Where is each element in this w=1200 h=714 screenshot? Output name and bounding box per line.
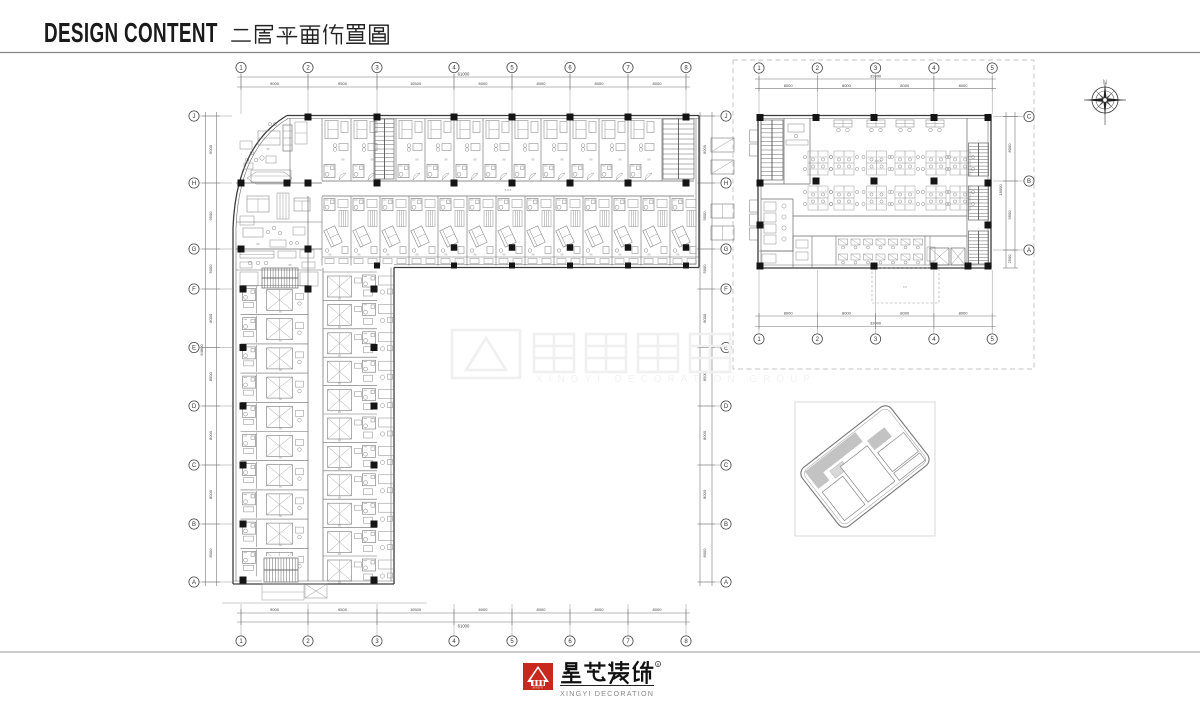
svg-text:8000: 8000 (784, 311, 794, 316)
svg-text:XINGYI DECORATION: XINGYI DECORATION (560, 689, 654, 698)
svg-text:18000: 18000 (998, 184, 1003, 196)
svg-text:8000: 8000 (959, 311, 969, 316)
svg-text:32000: 32000 (870, 321, 882, 326)
svg-text:8000: 8000 (1007, 143, 1012, 153)
svg-text:C: C (1027, 115, 1032, 121)
svg-text:8000: 8000 (959, 83, 969, 88)
svg-text:6000: 6000 (479, 607, 489, 612)
svg-text:8000: 8000 (842, 83, 852, 88)
svg-text:8 8: 8 8 (903, 285, 908, 289)
svg-text:8000: 8000 (537, 607, 547, 612)
svg-text:5000: 5000 (208, 264, 213, 274)
svg-text:A: A (1027, 248, 1031, 254)
svg-text:F: F (724, 287, 728, 293)
svg-text:J: J (725, 114, 728, 120)
svg-text:8000: 8000 (653, 607, 663, 612)
svg-text:8000: 8000 (595, 81, 605, 86)
svg-text:8000: 8000 (702, 430, 707, 440)
svg-text:A: A (724, 580, 728, 586)
svg-text:8000: 8000 (208, 489, 213, 499)
svg-text:B: B (1027, 179, 1031, 185)
svg-text:G: G (192, 247, 197, 253)
svg-text:8000: 8000 (208, 372, 213, 382)
svg-text:8000: 8000 (784, 83, 794, 88)
svg-text:61000: 61000 (458, 624, 470, 629)
svg-text:N: N (1102, 80, 1107, 87)
svg-text:9000: 9000 (702, 144, 707, 154)
svg-text:8000: 8000 (900, 311, 910, 316)
svg-text:9000: 9000 (208, 144, 213, 154)
svg-text:8000: 8000 (842, 311, 852, 316)
svg-text:F: F (192, 287, 196, 293)
svg-text:61000: 61000 (458, 72, 470, 77)
svg-text:D: D (192, 404, 197, 410)
svg-text:9000: 9000 (270, 81, 280, 86)
svg-text:6000: 6000 (479, 81, 489, 86)
svg-text:H: H (192, 181, 196, 187)
svg-text:A: A (192, 580, 196, 586)
svg-text:XINGYI: XINGYI (532, 686, 543, 690)
svg-text:8000: 8000 (702, 548, 707, 558)
svg-text:9500: 9500 (208, 211, 213, 221)
svg-text:10500: 10500 (410, 607, 422, 612)
svg-text:8000: 8000 (537, 81, 547, 86)
svg-text:5000: 5000 (702, 264, 707, 274)
svg-text:E: E (192, 346, 196, 352)
svg-text:64800: 64800 (199, 344, 204, 356)
svg-text:9500: 9500 (338, 81, 348, 86)
svg-text:8000: 8000 (208, 430, 213, 440)
svg-text:B: B (192, 522, 196, 528)
svg-text:2500: 2500 (1007, 254, 1012, 264)
svg-text:8000: 8000 (595, 607, 605, 612)
svg-text:8000: 8000 (702, 313, 707, 323)
svg-text:D: D (724, 404, 729, 410)
svg-text:8000: 8000 (702, 489, 707, 499)
svg-text:XINGYI DECORATION GROUP: XINGYI DECORATION GROUP (536, 374, 816, 385)
svg-text:J: J (193, 114, 196, 120)
svg-text:H: H (724, 181, 728, 187)
svg-text:8000: 8000 (208, 548, 213, 558)
svg-text:9500: 9500 (1007, 210, 1012, 220)
svg-text:8000: 8000 (653, 81, 663, 86)
svg-text:C: C (724, 463, 729, 469)
svg-text:10500: 10500 (410, 81, 422, 86)
svg-text:8 8 8: 8 8 8 (505, 188, 512, 192)
svg-text:B: B (724, 522, 728, 528)
svg-text:8000: 8000 (208, 313, 213, 323)
svg-text:G: G (724, 247, 729, 253)
svg-text:DESIGN CONTENT: DESIGN CONTENT (44, 17, 218, 49)
svg-text:32000: 32000 (870, 74, 882, 79)
svg-text:9500: 9500 (338, 607, 348, 612)
svg-text:9500: 9500 (702, 211, 707, 221)
svg-text:9000: 9000 (270, 607, 280, 612)
svg-text:8 8 8: 8 8 8 (875, 159, 882, 163)
svg-text:C: C (192, 463, 197, 469)
svg-text:8000: 8000 (900, 83, 910, 88)
